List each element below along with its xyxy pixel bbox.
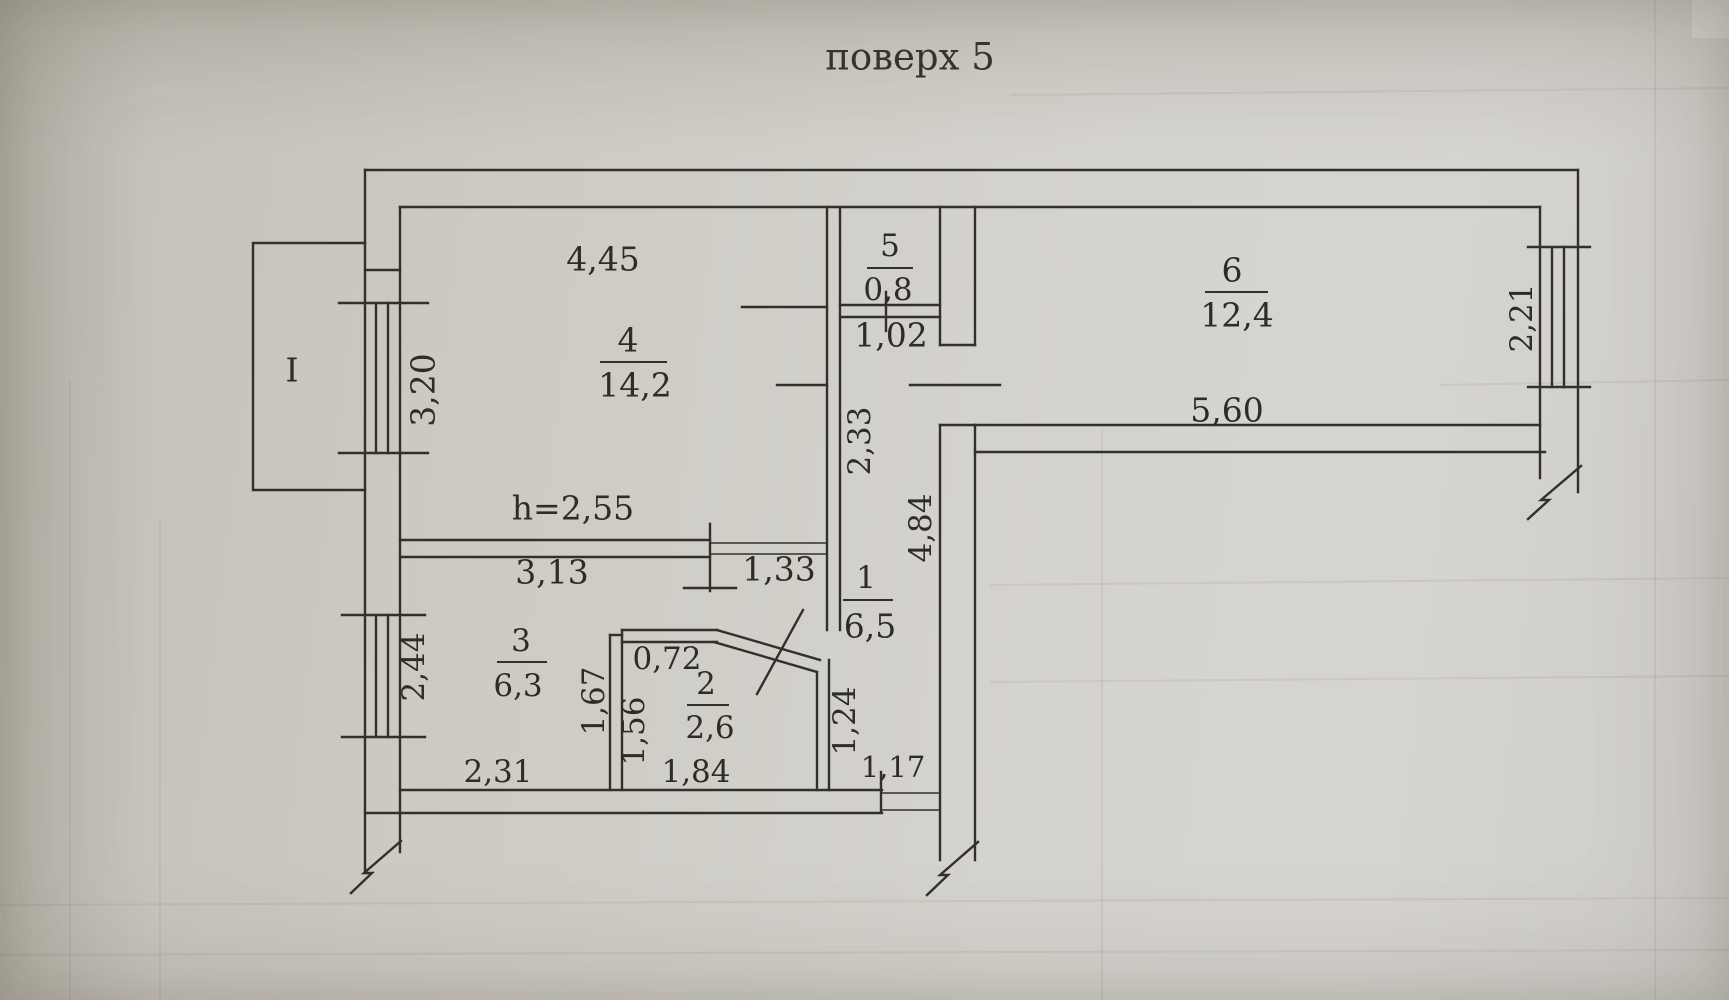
room2-number: 2 — [696, 666, 716, 702]
dim-hall-left: 2,33 — [842, 406, 878, 475]
dim-room2-left: 1,56 — [616, 696, 652, 765]
room1-area: 6,5 — [844, 607, 896, 646]
dim-entry: 1,17 — [861, 750, 926, 784]
paper-texture — [0, 0, 1729, 1000]
room1-number: 1 — [856, 560, 876, 596]
room4-number: 4 — [618, 321, 639, 360]
room2-area: 2,6 — [685, 710, 734, 746]
dim-room4-top: 4,45 — [566, 240, 639, 279]
dim-room3-right: 1,67 — [576, 666, 612, 735]
dim-room3-top: 3,13 — [515, 553, 588, 592]
dim-room3-left: 2,44 — [396, 632, 432, 701]
dim-room3-bottom: 2,31 — [463, 754, 532, 790]
room4-ceiling-height: h=2,55 — [512, 489, 634, 528]
dim-room2-bottom: 1,84 — [661, 754, 730, 790]
room5-area: 0,8 — [863, 272, 912, 308]
dim-room6-window: 2,21 — [1504, 283, 1540, 352]
dim-hall-top: 1,02 — [854, 316, 927, 355]
room6-number: 6 — [1222, 251, 1243, 290]
dim-room6-bottom: 5,60 — [1190, 391, 1263, 430]
dim-hall-door: 1,33 — [742, 550, 815, 589]
dim-room2-top: 0,72 — [632, 641, 701, 677]
room6-area: 12,4 — [1200, 296, 1273, 335]
room3-area: 6,3 — [493, 668, 542, 704]
room5-number: 5 — [880, 228, 900, 264]
room4-area: 14,2 — [598, 366, 671, 405]
floor-plan-photo: поверх 5 I 4,45 4 14,2 3,20 h=2,55 5 0,8… — [0, 0, 1729, 1000]
balcony-label: I — [285, 351, 298, 390]
dim-room2-right: 1,24 — [827, 686, 863, 755]
dim-room4-left: 3,20 — [404, 353, 443, 426]
page-title: поверх 5 — [825, 36, 995, 79]
interior-walls — [365, 207, 1545, 860]
floor-plan-svg: поверх 5 I 4,45 4 14,2 3,20 h=2,55 5 0,8… — [0, 0, 1729, 1000]
room3-number: 3 — [511, 623, 531, 659]
dim-hall-right: 4,84 — [903, 493, 939, 562]
